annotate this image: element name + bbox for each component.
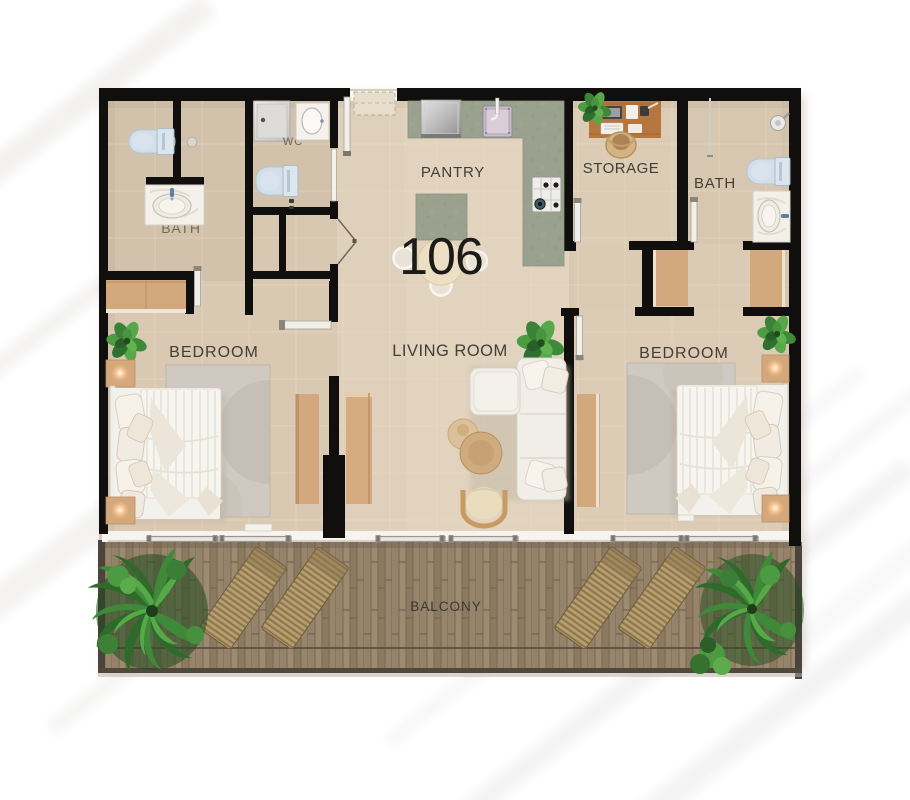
svg-text:PANTRY: PANTRY xyxy=(421,164,485,181)
svg-text:STORAGE: STORAGE xyxy=(583,160,660,177)
svg-text:BEDROOM: BEDROOM xyxy=(639,345,729,362)
svg-text:BALCONY: BALCONY xyxy=(410,599,482,614)
svg-text:LIVING ROOM: LIVING ROOM xyxy=(392,342,508,360)
svg-text:BEDROOM: BEDROOM xyxy=(169,344,259,361)
svg-text:BATH: BATH xyxy=(694,175,736,192)
svg-text:106: 106 xyxy=(399,228,483,286)
